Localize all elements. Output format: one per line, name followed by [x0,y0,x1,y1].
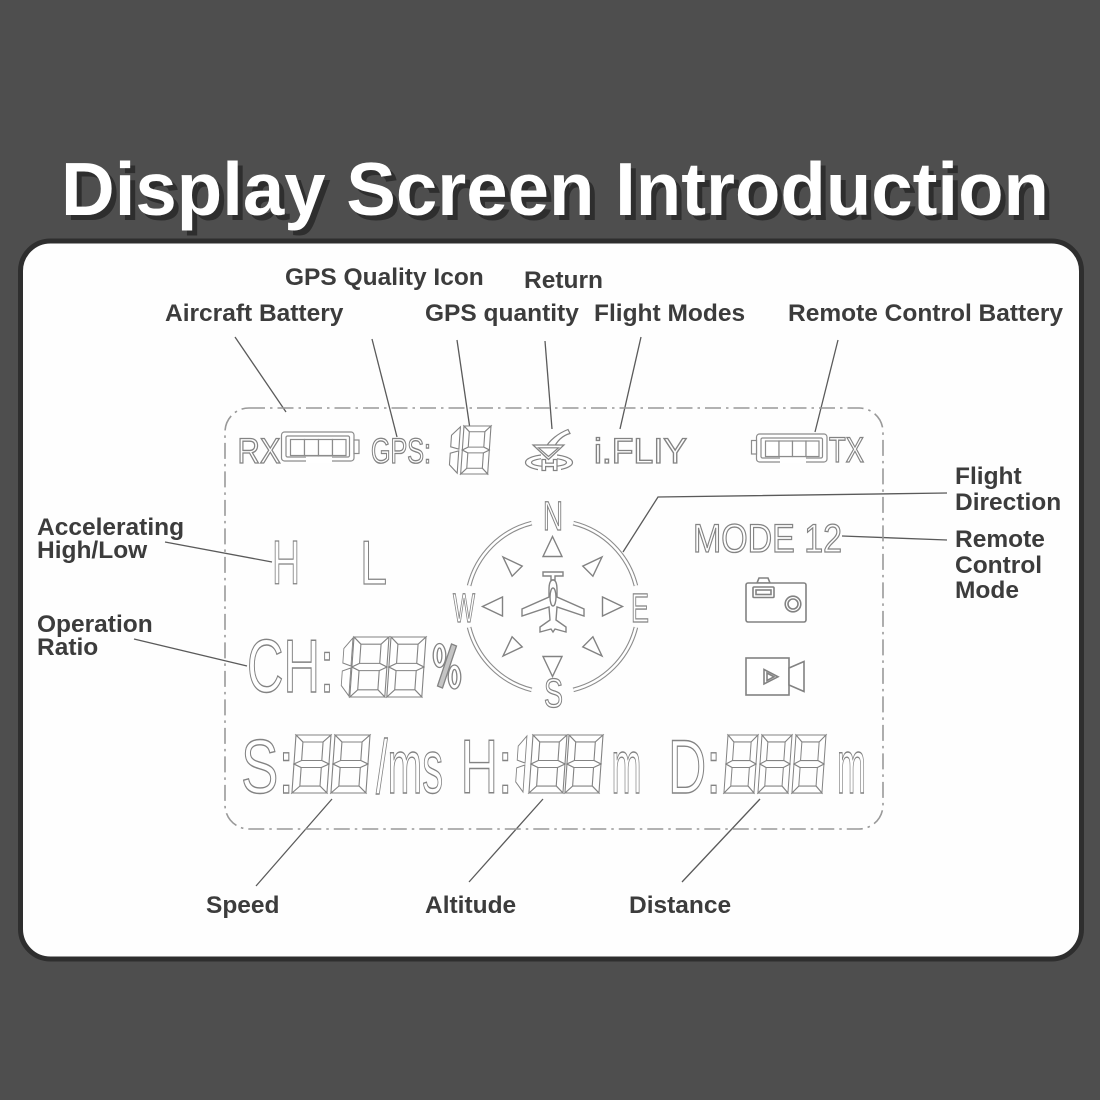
svg-text:Speed: Speed [206,892,280,919]
svg-text:D:: D: [668,725,721,810]
svg-text:Remote Control Battery: Remote Control Battery [788,300,1063,327]
svg-text:m: m [837,725,866,810]
svg-text:H: H [272,529,300,598]
svg-text:GPS Quality Icon: GPS Quality Icon [285,264,484,291]
svg-text:S:: S: [241,725,294,810]
svg-text:Flight: Flight [955,463,1022,490]
svg-text:Return: Return [524,267,603,294]
svg-text:N: N [543,493,563,539]
svg-text:/ms: /ms [376,725,443,810]
svg-text:H:: H: [461,725,513,810]
svg-text:Control: Control [955,552,1042,579]
svg-text:GPS quantity: GPS quantity [425,300,579,327]
svg-text:S: S [544,670,563,716]
svg-text:Remote: Remote [955,526,1045,553]
svg-text:High/Low: High/Low [37,537,148,564]
svg-text:Ratio: Ratio [37,634,98,661]
svg-text:GPS:: GPS: [371,432,431,471]
svg-text:Flight Modes: Flight Modes [594,300,745,327]
svg-text:W: W [453,585,475,631]
svg-text:RX: RX [238,432,281,471]
svg-text:MODE 12: MODE 12 [693,517,842,561]
svg-text:Aircraft Battery: Aircraft Battery [165,300,344,327]
svg-text:Mode: Mode [955,577,1019,604]
svg-text:i.FLIY: i.FLIY [594,432,687,471]
svg-text:E: E [631,585,649,631]
svg-text:L: L [360,529,387,598]
svg-text:m: m [612,725,642,810]
svg-text:Altitude: Altitude [425,892,516,919]
svg-text:Distance: Distance [629,892,731,919]
svg-text:CH:: CH: [247,624,334,708]
svg-text:Direction: Direction [955,489,1061,516]
svg-text:Display Screen Introduction: Display Screen Introduction [61,147,1049,231]
svg-text:TX: TX [829,431,864,470]
